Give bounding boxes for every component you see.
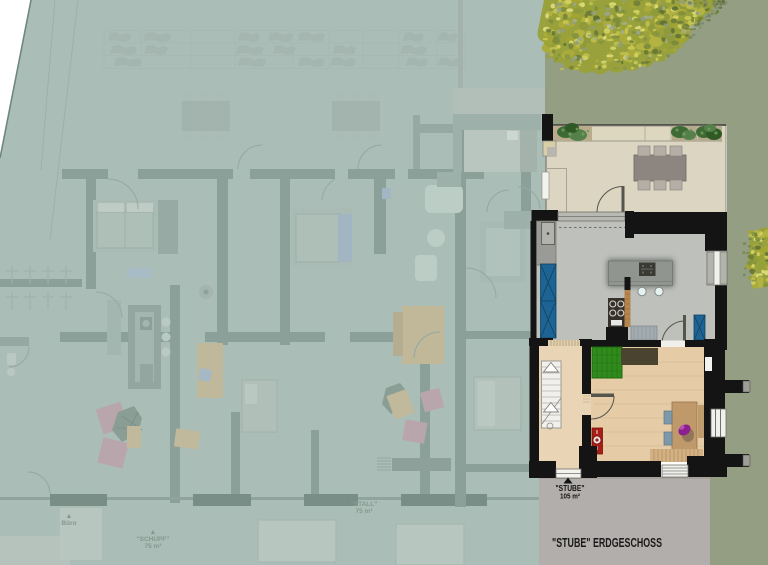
svg-text:"STUBE" ERDGESCHOSS: "STUBE" ERDGESCHOSS [552,536,662,550]
svg-text:75 m²: 75 m² [356,508,374,515]
svg-text:75 m²: 75 m² [145,543,163,550]
svg-text:Büro: Büro [61,520,76,527]
svg-text:▲: ▲ [150,529,157,536]
svg-text:"SCHUPF": "SCHUPF" [137,536,170,543]
svg-text:105 m²: 105 m² [560,492,581,501]
svg-text:▲: ▲ [66,513,73,520]
svg-text:"STALL": "STALL" [351,501,378,508]
